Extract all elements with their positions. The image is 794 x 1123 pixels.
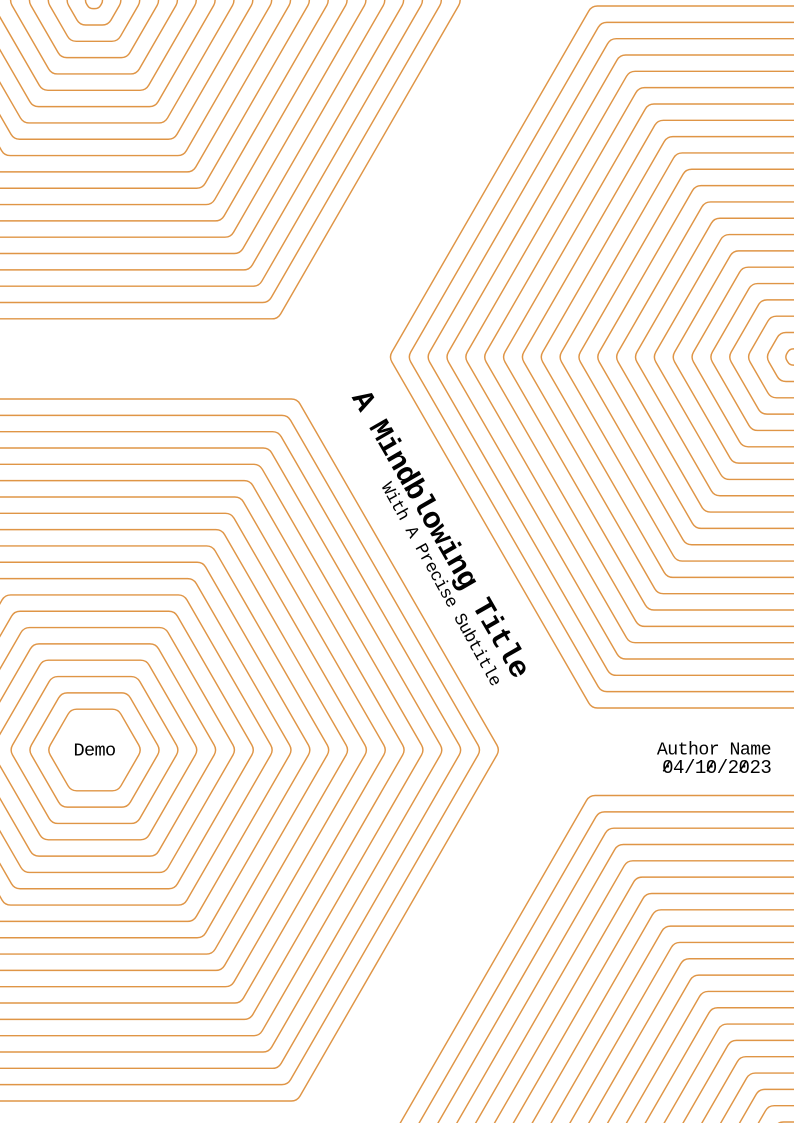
svg-text:04/10/2023: 04/10/2023 [662,757,771,779]
svg-text:Demo: Demo [74,741,116,762]
